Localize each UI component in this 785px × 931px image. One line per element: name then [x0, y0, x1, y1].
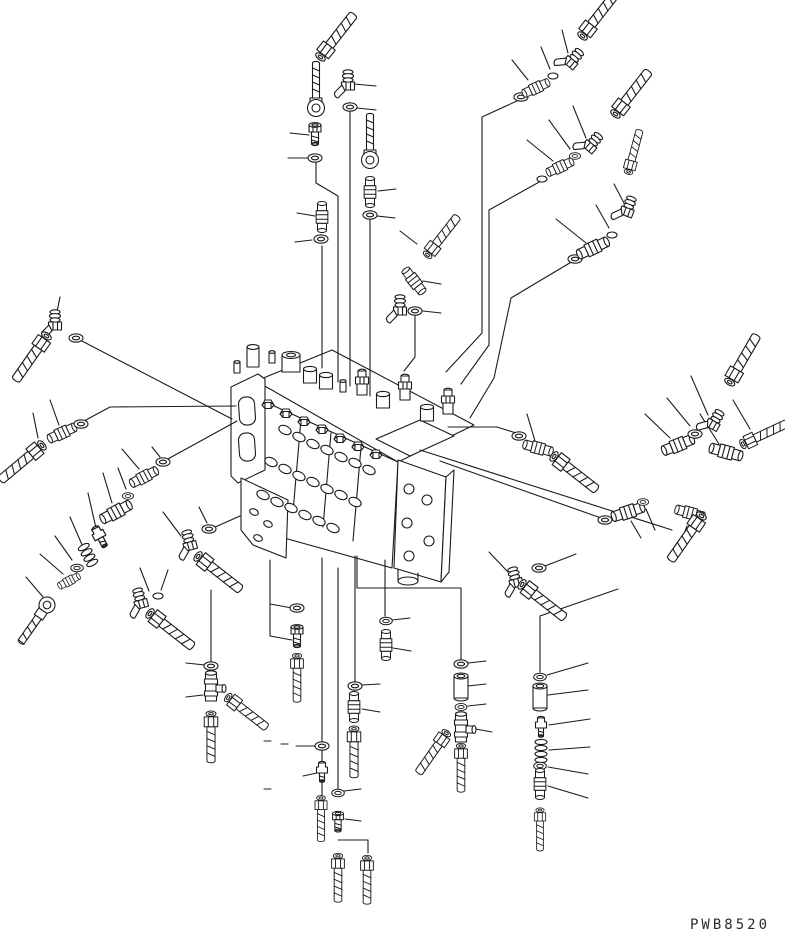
- valve-port: [424, 536, 434, 546]
- o-ring: [343, 103, 357, 111]
- o-ring: [308, 154, 322, 162]
- leader-line: [163, 512, 181, 536]
- valve-stud: [340, 380, 346, 392]
- relief-valve-assembly: [399, 374, 412, 400]
- leader-line: [400, 231, 417, 244]
- straight-connector: [534, 769, 546, 800]
- plug-bolt: [333, 811, 344, 832]
- leader-line: [548, 767, 588, 774]
- leader-line: [290, 133, 309, 135]
- o-ring: [74, 420, 88, 428]
- o-ring: [363, 211, 377, 219]
- valve-port: [402, 518, 412, 528]
- hose-fitting: [515, 577, 570, 624]
- leader-line: [461, 181, 541, 384]
- leader-line: [733, 400, 750, 429]
- leader-line: [423, 311, 441, 313]
- hose-fitting: [291, 653, 304, 702]
- hose-fitting: [9, 329, 54, 385]
- hose-fitting: [455, 743, 468, 792]
- o-ring: [534, 673, 547, 681]
- hose-fitting: [722, 331, 764, 388]
- leader-line: [338, 840, 368, 853]
- leader-line: [84, 406, 236, 421]
- hose-fitting: [313, 9, 360, 64]
- leader-line: [645, 414, 670, 438]
- hex-bolt: [352, 442, 364, 451]
- leader-line: [527, 140, 553, 161]
- valve-poppet: [536, 716, 547, 737]
- o-ring: [71, 564, 84, 572]
- leader-line: [186, 663, 205, 665]
- o-ring: [332, 789, 345, 797]
- leader-line: [527, 414, 535, 441]
- leader-line: [631, 521, 641, 538]
- valve-plate-slot: [238, 396, 256, 425]
- o-ring: [204, 662, 218, 670]
- eye-joint-hose: [14, 594, 58, 648]
- o-ring: [122, 493, 133, 500]
- elbow-fitting: [387, 295, 407, 323]
- banjo-bolt: [362, 113, 379, 168]
- o-ring: [688, 430, 702, 438]
- leader-line: [548, 690, 588, 695]
- washer: [537, 176, 547, 182]
- elbow-fitting: [335, 70, 355, 98]
- leader-line: [562, 30, 568, 53]
- o-ring: [290, 604, 304, 612]
- leader-line: [152, 447, 160, 457]
- hose-fitting: [534, 808, 545, 851]
- hex-bolt: [334, 434, 346, 443]
- valve-stud: [234, 361, 240, 373]
- leader-line: [468, 704, 486, 706]
- valve-poppet: [89, 524, 110, 550]
- elbow-fitting: [610, 192, 638, 225]
- leader-line: [596, 205, 609, 228]
- hose-fitting: [738, 417, 785, 451]
- hose-fitting: [191, 549, 246, 596]
- valve-cylinder-cap: [247, 345, 259, 367]
- relief-valve-assembly: [356, 369, 369, 395]
- hose-fitting: [204, 711, 218, 763]
- hose-fitting: [622, 128, 645, 176]
- valve-cap: [320, 372, 333, 389]
- leader-line: [161, 570, 168, 590]
- leader-line: [548, 786, 588, 798]
- valve-cap: [304, 366, 317, 383]
- hex-bolt: [370, 450, 382, 459]
- sleeve-fitting: [533, 683, 547, 711]
- leader-line: [549, 747, 590, 750]
- leader-line: [549, 120, 570, 149]
- o-ring: [637, 499, 648, 506]
- leader-line: [103, 473, 112, 503]
- hose-fitting: [143, 606, 198, 653]
- sleeve-fitting: [454, 673, 468, 701]
- coil-spring: [535, 739, 547, 762]
- leader-line: [446, 100, 519, 372]
- o-ring: [598, 516, 612, 524]
- leader-line: [362, 709, 380, 712]
- leader-line: [213, 516, 240, 528]
- o-ring: [348, 682, 362, 690]
- plug-bolt: [291, 625, 303, 648]
- leader-line: [393, 648, 411, 651]
- o-ring: [156, 458, 170, 466]
- straight-connector: [364, 177, 376, 208]
- leader-line: [556, 219, 586, 243]
- o-ring: [454, 660, 468, 668]
- valve-plate-slot: [238, 432, 256, 461]
- leader-line: [33, 413, 38, 438]
- leader-line: [357, 108, 376, 110]
- tee-connector: [455, 712, 477, 742]
- valve-poppet: [317, 761, 328, 782]
- straight-connector: [522, 438, 555, 457]
- leader-line: [404, 316, 415, 371]
- valve-bottom-cap: [398, 577, 418, 585]
- valve-stud: [269, 351, 275, 363]
- o-ring: [532, 564, 546, 572]
- figure-code: PWB8520: [690, 917, 770, 931]
- straight-connector: [128, 465, 161, 490]
- leader-line: [512, 60, 528, 80]
- o-ring: [380, 617, 393, 625]
- washer: [153, 593, 163, 599]
- leader-line: [420, 450, 672, 530]
- leader-line: [122, 449, 139, 469]
- hose-fitting: [413, 727, 454, 777]
- washer: [607, 232, 617, 238]
- hose-fitting: [222, 691, 271, 733]
- leader-line: [549, 719, 590, 725]
- tee-connector: [205, 671, 227, 701]
- leader-line: [489, 552, 508, 572]
- leader-line: [186, 695, 203, 697]
- valve-cap: [377, 391, 390, 408]
- leader-line: [50, 400, 59, 425]
- leader-line: [316, 163, 338, 382]
- leader-line: [270, 604, 292, 608]
- hose-fitting: [421, 212, 463, 261]
- relief-valve-assembly: [442, 388, 455, 414]
- o-ring: [69, 334, 83, 342]
- coil-spring: [77, 542, 98, 568]
- valve-left-end-plate: [231, 374, 265, 483]
- hose-fitting: [575, 0, 622, 43]
- hex-bolt: [280, 409, 292, 418]
- washer: [548, 73, 558, 79]
- hose-fitting: [315, 796, 327, 842]
- leader-line: [166, 421, 237, 460]
- leader-line: [140, 568, 149, 591]
- parts-diagram-page: PWB8520: [0, 0, 785, 931]
- banjo-bolt: [308, 61, 325, 116]
- control-valve-body: [231, 350, 474, 585]
- leader-line: [199, 507, 207, 523]
- hex-bolt: [298, 417, 310, 426]
- leader-line: [70, 517, 83, 547]
- valve-large-cap: [282, 352, 300, 373]
- o-ring: [315, 742, 329, 750]
- elbow-fitting: [552, 42, 585, 76]
- leader-line: [118, 468, 126, 489]
- leader-line: [362, 684, 380, 685]
- leader-line: [354, 84, 376, 86]
- leader-line: [614, 184, 624, 203]
- straight-connector: [544, 156, 575, 178]
- leader-line: [377, 216, 395, 218]
- plug-bolt: [309, 123, 321, 146]
- o-ring: [455, 703, 467, 710]
- leader-line: [547, 663, 588, 675]
- leader-line: [573, 106, 586, 138]
- valve-port: [404, 551, 414, 561]
- leader-line: [392, 618, 410, 620]
- straight-connector: [348, 692, 360, 723]
- o-ring: [202, 525, 216, 533]
- hose-fitting: [332, 853, 345, 902]
- leader-line: [345, 819, 361, 821]
- leader-line: [88, 493, 96, 528]
- valve-right-block-front: [394, 460, 446, 582]
- leader-line: [297, 213, 315, 216]
- leader-line: [667, 398, 690, 426]
- straight-connector: [708, 441, 745, 462]
- leader-line: [646, 509, 655, 530]
- hose-fitting: [361, 855, 374, 904]
- hex-bolt: [262, 400, 274, 409]
- valve-port: [404, 484, 414, 494]
- straight-connector: [380, 630, 392, 661]
- leader-line: [468, 661, 486, 663]
- leader-line: [545, 554, 576, 566]
- leader-line: [691, 376, 708, 415]
- leader-line: [55, 536, 72, 560]
- o-ring: [512, 432, 526, 440]
- leader-line: [423, 281, 441, 284]
- straight-connector: [316, 202, 328, 233]
- o-ring: [314, 235, 328, 243]
- leader-line: [378, 189, 396, 191]
- leader-line: [303, 773, 317, 776]
- straight-connector: [98, 498, 134, 526]
- o-ring: [408, 307, 422, 315]
- leader-line: [468, 684, 486, 686]
- hose-fitting: [547, 449, 602, 496]
- leader-line: [26, 577, 43, 597]
- hex-bolt: [316, 425, 328, 434]
- hose-fitting: [347, 726, 361, 778]
- leader-line: [470, 261, 573, 418]
- leader-line: [344, 789, 361, 791]
- leader-line: [541, 47, 550, 69]
- valve-cap: [421, 404, 434, 421]
- leader-line: [295, 240, 312, 242]
- leader-line: [270, 560, 292, 640]
- hose-fitting: [0, 438, 49, 486]
- hose-fitting: [608, 66, 655, 121]
- o-ring: [569, 153, 580, 160]
- straight-connector: [56, 571, 82, 590]
- straight-connector: [520, 77, 551, 99]
- leader-line: [40, 554, 63, 574]
- hydraulic-valve-parts-diagram: PWB8520: [0, 0, 785, 931]
- valve-port: [422, 495, 432, 505]
